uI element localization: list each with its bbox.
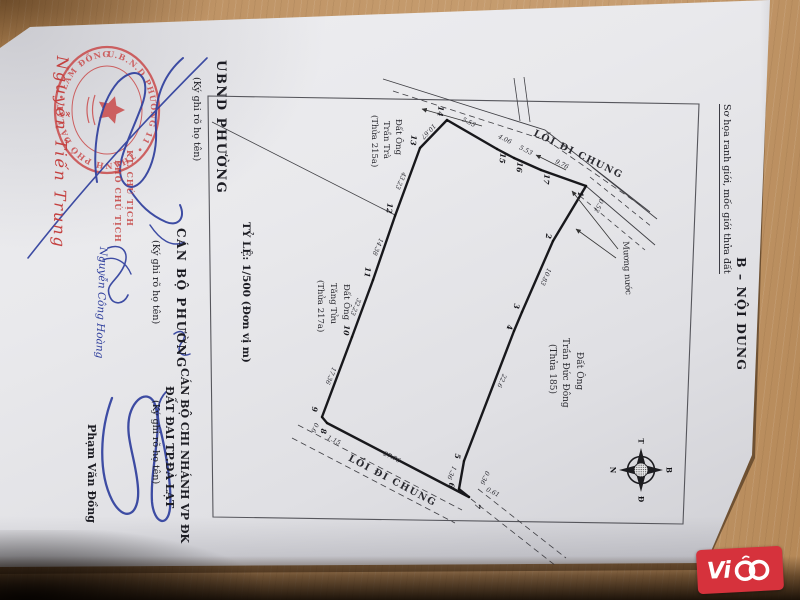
- boundary-point-label-9: 9: [310, 406, 320, 413]
- edge-measurement-2: 5.53: [518, 144, 534, 156]
- boundary-point-label-8: 8: [319, 428, 329, 435]
- compass-rose-icon: [619, 448, 663, 492]
- edge-measurement-17: 10.67: [419, 122, 437, 140]
- boundary-point-marker-8: [326, 422, 328, 424]
- section-subheading: Sơ họa ranh giới, mốc giới thửa đất: [719, 104, 731, 274]
- boundary-point-label-7: 7: [473, 503, 483, 510]
- section-heading: B – NỘI DUNG: [735, 257, 748, 371]
- parcel-185-line3: (Thửa 185): [547, 344, 556, 394]
- parcel-215a-line1: Đất Ông: [393, 119, 402, 155]
- can-bo-phuong-note: (Ký ghi rõ họ tên): [150, 240, 160, 324]
- edge-measurement-0: 5.53: [461, 116, 477, 128]
- vico-rings-icon: [730, 552, 774, 586]
- boundary-point-marker-15: [496, 148, 498, 150]
- boundary-point-label-17: 17: [541, 174, 551, 186]
- compass-letter-east: Đ: [637, 496, 646, 502]
- boundary-point-label-15: 15: [497, 153, 507, 164]
- chi-nhanh-title2: ĐẤT ĐAI TP.ĐÀ LẠT: [163, 386, 175, 508]
- parcel-215a-line2: Trần Trà: [381, 121, 390, 159]
- can-bo-phuong-title: CÁN BỘ PHƯỜNG: [174, 228, 187, 369]
- parcel-217a-line1: Đất Ông: [341, 284, 350, 320]
- map-frame: [208, 96, 699, 524]
- scale-note: TỶ LỆ: 1/500 (Đơn vị m): [240, 222, 251, 363]
- parcel-185-line2: Trần Đức Đông: [560, 338, 569, 408]
- edge-measurement-1: 4.06: [496, 133, 513, 146]
- stamp-role-line1: KT. CHỦ TỊCH: [126, 150, 134, 227]
- boundary-point-label-2: 2: [544, 232, 554, 239]
- map-annotations: 12345678910111213141516175.534.065.539.7…: [309, 106, 604, 511]
- leader-arrows: [422, 109, 618, 258]
- vico-logo-text: Vi: [706, 558, 731, 585]
- signer-name-red-handwriting: Nguyễn Tiến Trung: [50, 56, 70, 249]
- parcel-217a-line3: (Thửa 217a): [315, 280, 324, 332]
- boundary-point-marker-6: [458, 488, 460, 490]
- edge-measurement-10: 27.76: [381, 450, 401, 465]
- boundary-point-label-10: 10: [341, 325, 351, 337]
- boundary-point-label-14: 14: [435, 106, 445, 117]
- boundary-point-marker-12: [394, 215, 396, 217]
- parcel-217a-line2: Tăng Tửu: [328, 283, 337, 324]
- boundary-point-label-12: 12: [384, 203, 394, 214]
- edge-measurement-7: 0.36: [478, 470, 490, 486]
- boundary-point-marker-2: [552, 240, 554, 242]
- compass-letter-north: B: [665, 467, 674, 473]
- boundary-point-marker-14: [446, 119, 448, 121]
- water-channel-label: Mương nước: [620, 241, 632, 295]
- boundary-point-label-3: 3: [512, 303, 521, 309]
- boundary-point-label-5: 5: [453, 453, 462, 459]
- boundary-point-marker-16: [513, 157, 515, 159]
- sketch-map-drawing: BNĐT 12345678910111213141516175.534.065.…: [0, 0, 800, 600]
- parcel-215a-line3: (Thửa 215a): [369, 115, 378, 167]
- chi-nhanh-note: (Ký ghi rõ họ tên): [150, 400, 160, 484]
- compass-letter-south: N: [609, 467, 618, 474]
- edge-measurement-9: 1.36: [445, 465, 457, 481]
- parcel-185-line1: Đất Ông: [574, 352, 583, 390]
- boundary-point-marker-7: [468, 496, 470, 498]
- boundary-point-marker-9: [321, 416, 323, 418]
- boundary-point-marker-3: [521, 311, 523, 313]
- boundary-point-label-13: 13: [408, 135, 418, 146]
- photo-of-survey-document: BNĐT 12345678910111213141516175.534.065.…: [0, 0, 800, 600]
- edge-measurement-3: 9.76: [554, 158, 570, 170]
- chi-nhanh-signer: Phạm Văn Đồng: [85, 424, 97, 523]
- boundary-point-marker-17: [540, 169, 542, 171]
- edge-measurement-4: 0.52: [592, 198, 604, 214]
- ubnd-phuong-title: UBND PHƯỜNG: [213, 60, 227, 194]
- edge-measurement-8: 0.61: [485, 486, 501, 498]
- compass-letter-west: T: [637, 438, 646, 444]
- boundary-point-label-4: 4: [505, 324, 514, 330]
- ubnd-phuong-note: (Ký ghi rõ họ tên): [191, 77, 201, 161]
- stamp-role-line2: PHÓ CHỦ TỊCH: [114, 160, 122, 243]
- boundary-point-marker-10: [351, 336, 353, 338]
- boundary-point-marker-5: [463, 460, 465, 462]
- boundary-point-marker-13: [419, 147, 421, 149]
- road-lines: [212, 77, 657, 566]
- chi-nhanh-title1: CÁN BỘ CHI NHÁNH VP ĐK: [178, 368, 190, 543]
- wood-shadow-bottom-left: [0, 530, 260, 600]
- edge-measurement-11: 1.15: [326, 434, 342, 446]
- boundary-point-label-16: 16: [514, 162, 524, 174]
- vico-watermark-logo: Vi: [696, 546, 784, 594]
- boundary-point-label-11: 11: [362, 267, 372, 278]
- boundary-point-marker-1: [585, 185, 587, 187]
- boundary-point-marker-11: [372, 279, 374, 281]
- boundary-point-label-1: 1: [576, 191, 585, 197]
